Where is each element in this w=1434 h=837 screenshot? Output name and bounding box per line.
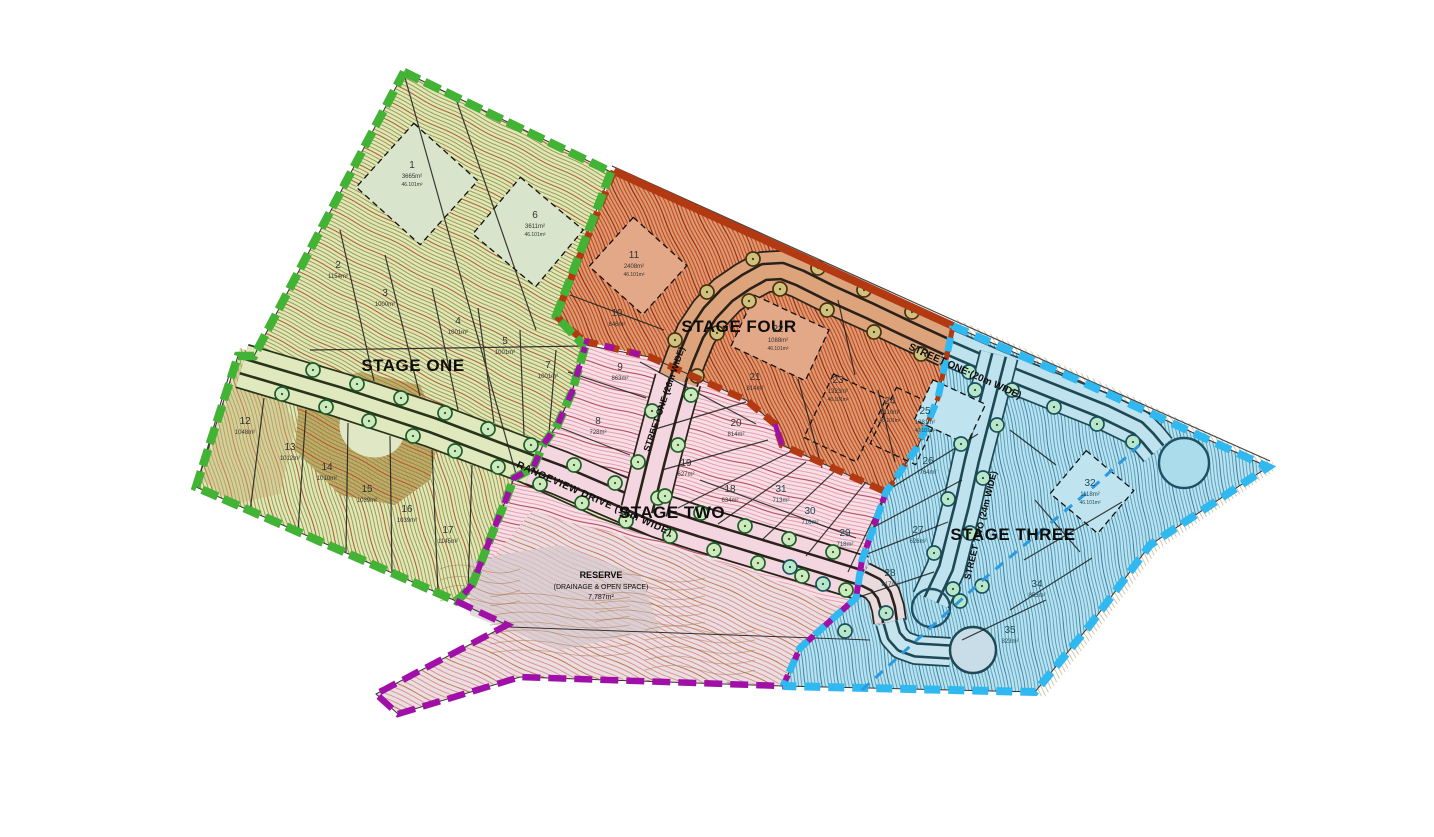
svg-text:1001m²: 1001m² [495, 350, 515, 356]
svg-text:46.101m²: 46.101m² [879, 418, 900, 424]
svg-text:855m²: 855m² [1028, 593, 1045, 599]
svg-text:46.101m²: 46.101m² [767, 346, 788, 352]
svg-text:1145m²: 1145m² [438, 539, 458, 545]
svg-text:22: 22 [772, 324, 784, 335]
svg-text:728m²: 728m² [589, 430, 606, 436]
svg-text:814m²: 814m² [727, 432, 744, 438]
svg-text:15: 15 [361, 484, 373, 495]
svg-text:26: 26 [922, 456, 934, 467]
svg-text:1088m²: 1088m² [768, 338, 788, 344]
svg-text:1323m²: 1323m² [828, 389, 848, 395]
svg-text:1118m²: 1118m² [1080, 492, 1099, 498]
svg-text:34: 34 [1031, 579, 1043, 590]
svg-text:31: 31 [775, 484, 787, 495]
svg-text:1048m²: 1048m² [235, 430, 255, 436]
svg-text:1081m²: 1081m² [915, 420, 935, 426]
svg-text:11: 11 [629, 250, 640, 261]
svg-text:1001m²: 1001m² [448, 330, 468, 336]
svg-text:12: 12 [239, 416, 251, 427]
svg-text:STAGE THREE: STAGE THREE [950, 525, 1075, 544]
svg-text:716m²: 716m² [801, 520, 818, 526]
svg-text:817m²: 817m² [881, 582, 898, 588]
svg-text:2408m²: 2408m² [624, 264, 644, 270]
svg-text:1001m²: 1001m² [538, 374, 558, 380]
svg-text:RESERVE: RESERVE [580, 570, 623, 580]
svg-text:7: 7 [545, 360, 551, 371]
svg-text:1010m²: 1010m² [317, 476, 337, 482]
svg-text:10: 10 [611, 308, 623, 319]
svg-text:1154m²: 1154m² [328, 274, 348, 280]
svg-text:626m²: 626m² [909, 539, 926, 545]
svg-text:2: 2 [335, 260, 341, 271]
svg-text:46.101m²: 46.101m² [1079, 500, 1100, 506]
svg-text:13: 13 [284, 442, 296, 453]
svg-text:863m²: 863m² [611, 376, 628, 382]
svg-text:16: 16 [401, 504, 413, 515]
svg-text:29: 29 [839, 528, 851, 539]
svg-text:30: 30 [804, 506, 816, 517]
svg-text:24: 24 [884, 396, 896, 407]
svg-text:27: 27 [912, 525, 924, 536]
svg-text:46.101m²: 46.101m² [914, 428, 935, 434]
svg-text:764m²: 764m² [919, 470, 936, 476]
svg-text:17: 17 [442, 525, 454, 536]
svg-text:25: 25 [919, 406, 931, 417]
svg-text:1039m²: 1039m² [397, 518, 417, 524]
svg-text:1012m²: 1012m² [280, 456, 300, 462]
svg-text:1: 1 [409, 160, 415, 171]
svg-text:(DRAINAGE & OPEN SPACE): (DRAINAGE & OPEN SPACE) [554, 584, 649, 591]
svg-text:1000m²: 1000m² [375, 302, 395, 308]
svg-text:32: 32 [1084, 478, 1096, 489]
svg-text:18: 18 [724, 484, 736, 495]
svg-text:23: 23 [832, 375, 844, 386]
svg-text:9: 9 [617, 362, 623, 373]
svg-text:8: 8 [595, 416, 601, 427]
svg-text:713m²: 713m² [772, 498, 789, 504]
svg-text:35: 35 [1004, 625, 1016, 636]
svg-text:1310m²: 1310m² [880, 410, 900, 416]
svg-text:19: 19 [680, 458, 692, 469]
svg-text:7,787m²: 7,787m² [588, 594, 614, 601]
svg-text:814m²: 814m² [746, 386, 763, 392]
svg-text:627m²: 627m² [677, 472, 694, 478]
svg-text:823m²: 823m² [1001, 639, 1018, 645]
svg-text:5: 5 [502, 336, 508, 347]
svg-text:6: 6 [532, 210, 538, 221]
svg-text:3: 3 [382, 288, 388, 299]
svg-text:46.101m²: 46.101m² [401, 182, 422, 188]
svg-text:46.101m²: 46.101m² [827, 397, 848, 403]
svg-text:21: 21 [749, 372, 761, 383]
svg-text:3611m²: 3611m² [525, 224, 545, 230]
svg-text:634m²: 634m² [721, 498, 738, 504]
svg-text:4: 4 [455, 316, 461, 327]
svg-text:20: 20 [730, 418, 742, 429]
svg-text:28: 28 [884, 568, 896, 579]
svg-text:1039m²: 1039m² [357, 498, 377, 504]
svg-text:46.101m²: 46.101m² [623, 272, 644, 278]
svg-text:46.101m²: 46.101m² [524, 232, 545, 238]
svg-text:14: 14 [321, 462, 333, 473]
svg-text:3665m²: 3665m² [402, 174, 422, 180]
svg-text:STAGE ONE: STAGE ONE [361, 356, 464, 375]
svg-text:718m²: 718m² [836, 542, 853, 548]
svg-text:846m²: 846m² [608, 322, 625, 328]
